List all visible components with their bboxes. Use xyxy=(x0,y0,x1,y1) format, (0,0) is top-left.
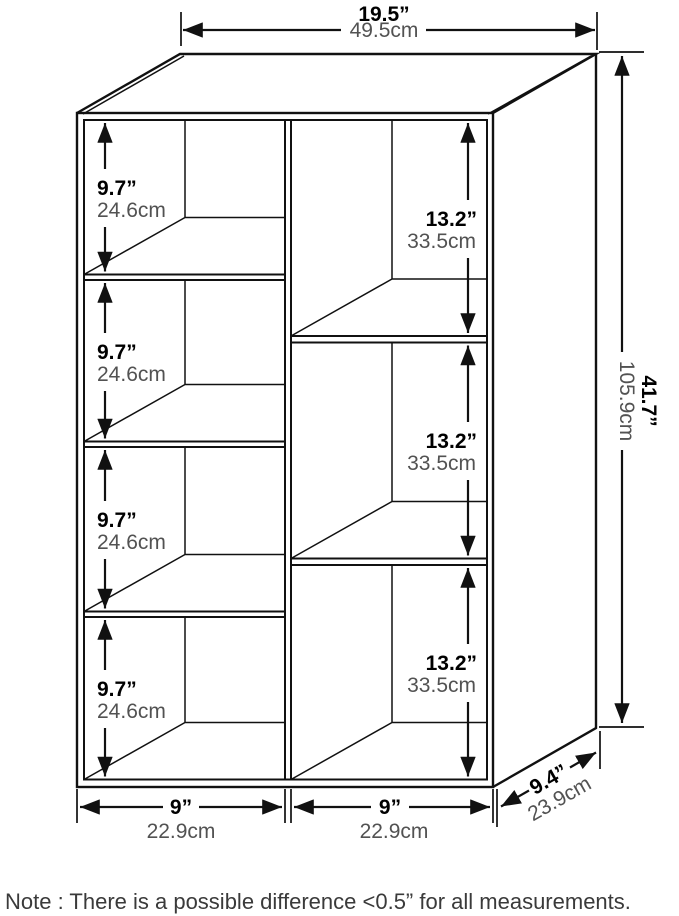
top-face-right-edge-inner xyxy=(488,56,591,114)
left-shelf-1 xyxy=(84,275,284,281)
right-shelf-2 xyxy=(292,559,487,566)
dim-overall-height: 41.7” 105.9cm xyxy=(599,52,660,727)
right-shelf-1 xyxy=(292,336,487,343)
dim-right-column-cm: 22.9cm xyxy=(360,820,429,843)
cabinet-outline xyxy=(77,54,596,787)
dim-right-cube-3: 13.2” 33.5cm xyxy=(407,568,477,777)
dim-overall-width: 19.5” 49.5cm xyxy=(181,3,597,50)
dim-left-cube-3-inches: 9.7” xyxy=(97,509,137,532)
dim-right-cube-2-cm: 33.5cm xyxy=(407,452,476,475)
dimension-diagram-page: 19.5” 49.5cm 41.7” 105.9cm 9.4” 23.9cm 9… xyxy=(0,0,679,916)
dim-left-cube-4-cm: 24.6cm xyxy=(97,700,166,723)
dim-left-column-cm: 22.9cm xyxy=(147,820,216,843)
dim-right-column-inches: 9” xyxy=(379,796,401,819)
dim-width-cm: 49.5cm xyxy=(350,19,419,42)
dim-depth-arrow-front xyxy=(501,791,529,807)
dim-right-cube-3-cm: 33.5cm xyxy=(407,674,476,697)
dim-left-cube-1-inches: 9.7” xyxy=(97,177,137,200)
dim-right-cube-3-inches: 13.2” xyxy=(426,652,477,675)
top-face-left-edge-inner xyxy=(83,56,184,114)
dim-right-cube-1-cm: 33.5cm xyxy=(407,230,476,253)
cabinet-dimension-diagram: 19.5” 49.5cm 41.7” 105.9cm 9.4” 23.9cm 9… xyxy=(0,0,679,916)
side-face xyxy=(493,54,596,787)
center-divider xyxy=(285,120,291,780)
dim-height-cm: 105.9cm xyxy=(615,361,638,442)
dim-left-column-width: 9” 22.9cm xyxy=(77,789,493,843)
dim-left-column-inches: 9” xyxy=(170,796,192,819)
dim-right-column-width: 9” 22.9cm xyxy=(294,796,490,843)
left-shelf-3 xyxy=(84,612,284,618)
top-face xyxy=(77,54,596,113)
dim-left-cube-3-cm: 24.6cm xyxy=(97,531,166,554)
dim-left-cube-4-inches: 9.7” xyxy=(97,678,137,701)
dim-depth-arrow-back xyxy=(570,753,596,768)
dim-left-cube-1: 9.7” 24.6cm xyxy=(97,123,166,272)
dim-right-cube-2-inches: 13.2” xyxy=(426,430,477,453)
measurement-note: Note : There is a possible difference <0… xyxy=(5,889,631,914)
dim-right-cube-2: 13.2” 33.5cm xyxy=(407,346,477,556)
left-shelf-2 xyxy=(84,442,284,448)
dim-right-cube-1: 13.2” 33.5cm xyxy=(407,123,477,333)
dim-right-cube-1-inches: 13.2” xyxy=(426,208,477,231)
dim-overall-depth: 9.4” 23.9cm xyxy=(497,731,600,827)
dim-left-cube-1-cm: 24.6cm xyxy=(97,199,166,222)
dim-height-inches: 41.7” xyxy=(637,375,660,426)
dim-left-cube-2-cm: 24.6cm xyxy=(97,363,166,386)
dim-left-cube-2-inches: 9.7” xyxy=(97,341,137,364)
